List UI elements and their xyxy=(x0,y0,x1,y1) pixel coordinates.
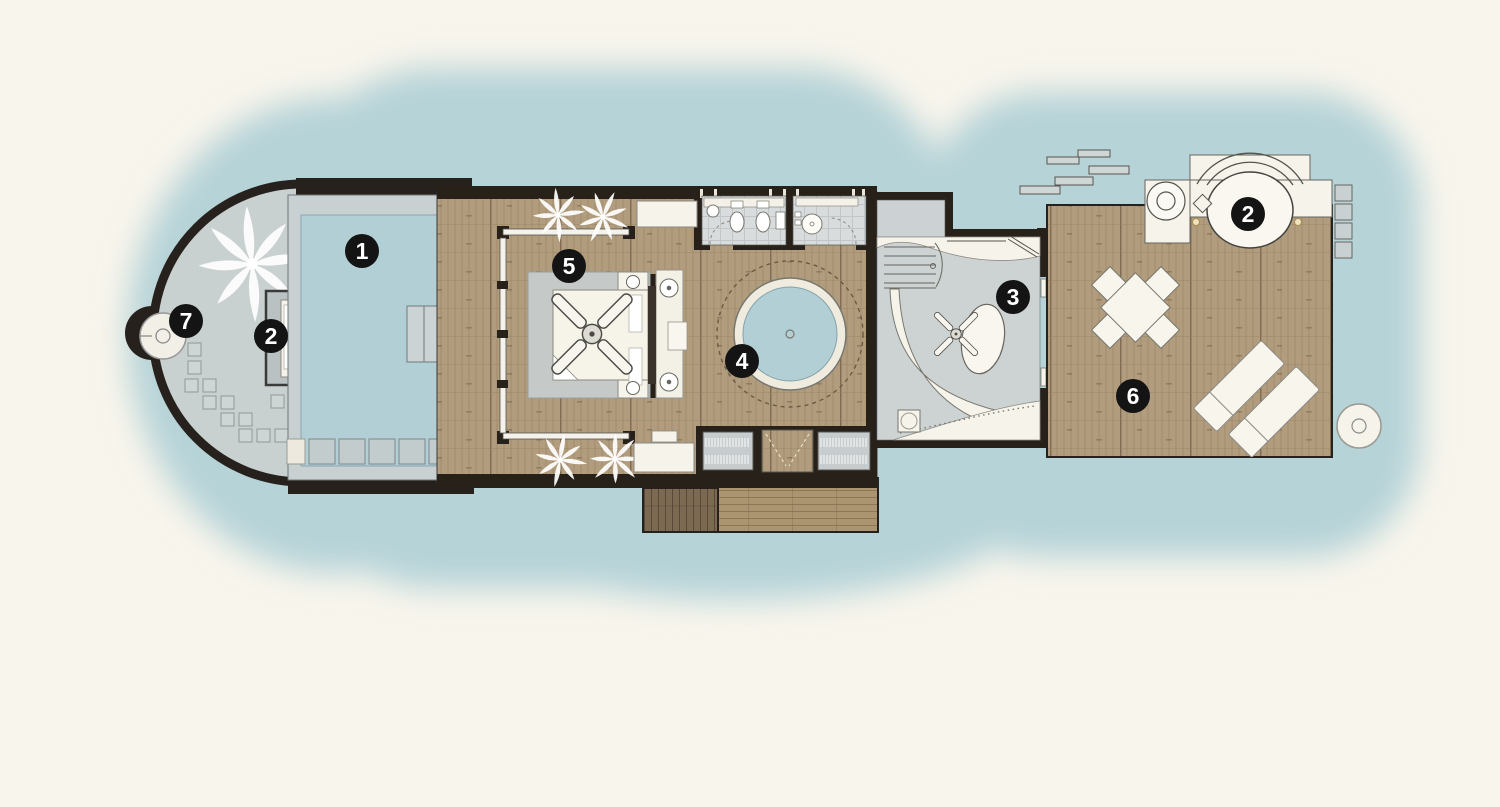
marker-bedroom-label: 5 xyxy=(563,253,576,279)
marker-bedroom: 5 xyxy=(552,249,586,283)
basin xyxy=(707,205,719,217)
floor-plan-drawing: 1 2 3 4 5 6 7 2 xyxy=(0,0,1500,807)
marker-jacuzzi-label: 4 xyxy=(736,348,749,374)
bed xyxy=(553,286,656,385)
headboard xyxy=(648,286,656,384)
marker-outdoor-shower: 7 xyxy=(169,304,203,338)
hammock-net-icon xyxy=(1147,182,1185,220)
marker-pool: 1 xyxy=(345,234,379,268)
cabinet xyxy=(776,212,785,229)
door-leaf xyxy=(1041,279,1046,297)
rain-shower xyxy=(802,214,822,234)
marker-bathroom-label: 3 xyxy=(1007,284,1020,310)
marker-bathroom: 3 xyxy=(996,280,1030,314)
marker-left-daybed: 2 xyxy=(254,319,288,353)
marker-left-daybed-label: 2 xyxy=(265,323,278,349)
luggage-niche xyxy=(762,430,813,472)
marker-sun-deck-label: 6 xyxy=(1127,383,1140,409)
wc-room xyxy=(702,196,786,245)
bathroom-room xyxy=(877,236,1046,440)
rear-deck-dark xyxy=(643,488,718,532)
dining-set xyxy=(1092,267,1180,349)
marker-right-daybed: 2 xyxy=(1231,197,1265,231)
marker-pool-label: 1 xyxy=(356,238,369,264)
entry-landing xyxy=(877,200,945,240)
bench xyxy=(637,201,697,227)
marker-sun-deck: 6 xyxy=(1116,379,1150,413)
shelf xyxy=(796,198,858,206)
bidet xyxy=(756,212,770,232)
deck-shower-platform xyxy=(1337,404,1381,448)
stool xyxy=(652,431,677,442)
marker-jacuzzi: 4 xyxy=(725,344,759,378)
floor-plan-canvas: 1 2 3 4 5 6 7 2 xyxy=(0,0,1500,807)
console-table xyxy=(668,322,687,350)
marker-right-daybed-label: 2 xyxy=(1242,201,1255,227)
desk xyxy=(634,443,694,472)
shower-room xyxy=(793,196,866,245)
stool xyxy=(898,410,920,432)
toilet xyxy=(730,212,744,232)
in-pool-bench xyxy=(287,439,455,464)
marker-outdoor-shower-label: 7 xyxy=(180,308,193,334)
wardrobes xyxy=(703,430,870,472)
door-leaf xyxy=(1041,368,1046,386)
